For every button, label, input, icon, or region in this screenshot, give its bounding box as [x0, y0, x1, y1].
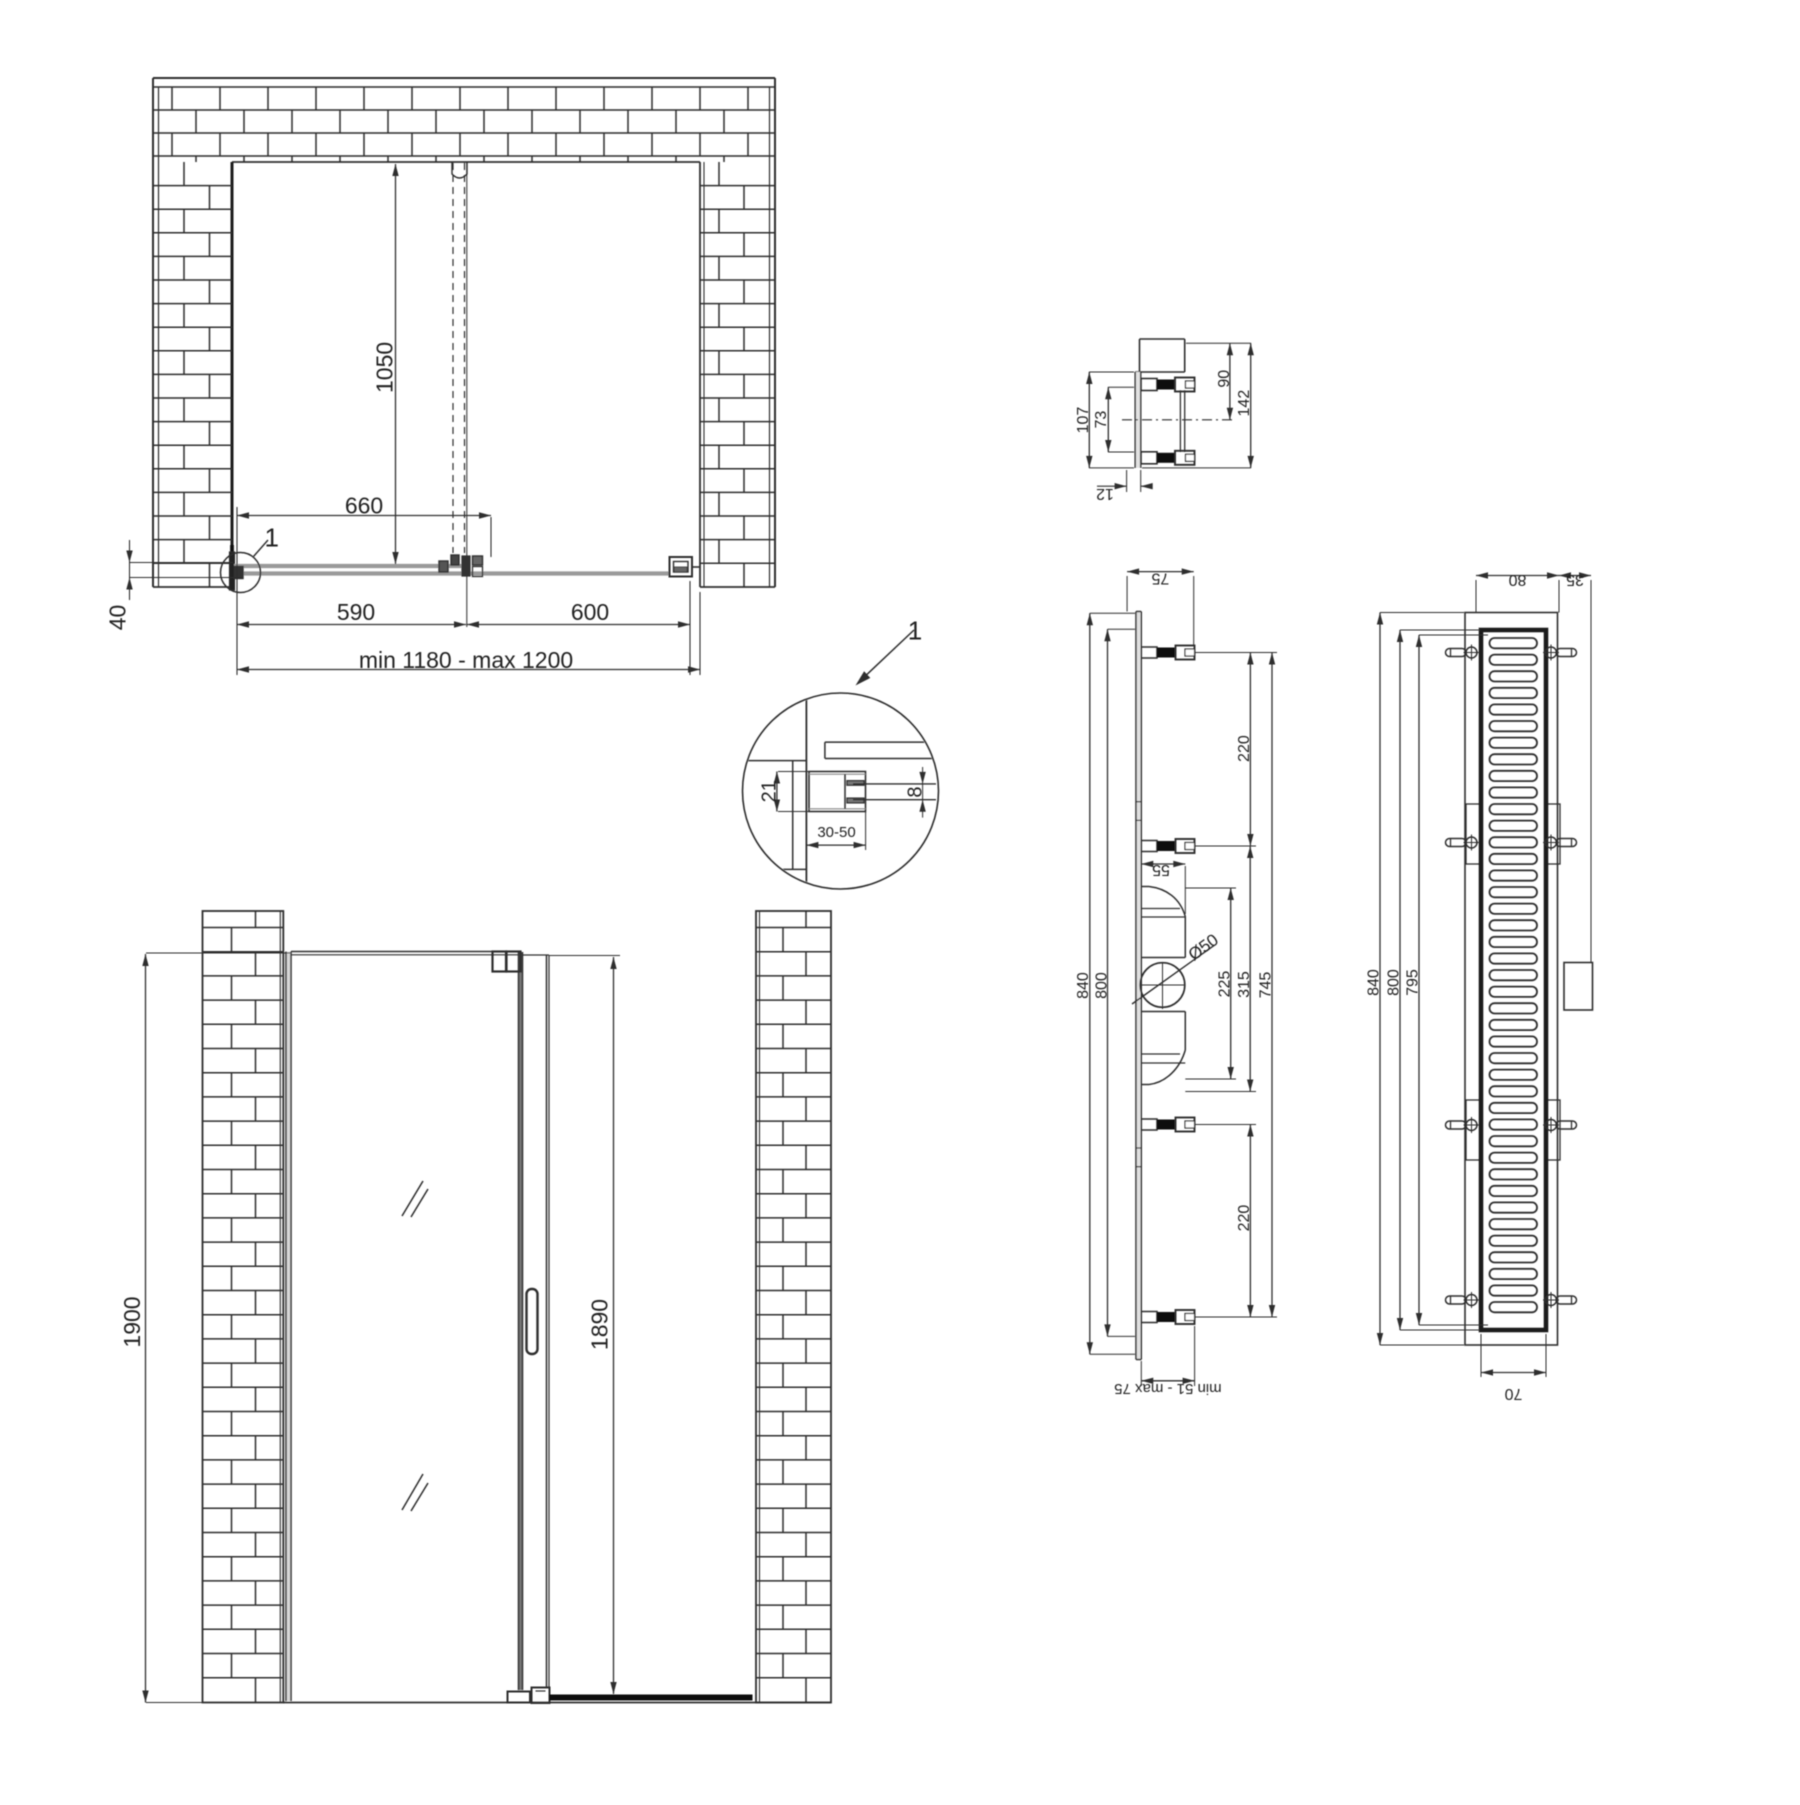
svg-text:225: 225 — [1216, 971, 1233, 998]
svg-text:315: 315 — [1236, 971, 1253, 998]
svg-text:107: 107 — [1075, 407, 1092, 434]
svg-text:800: 800 — [1385, 969, 1402, 996]
svg-text:40: 40 — [105, 605, 131, 631]
svg-text:70: 70 — [1505, 1385, 1523, 1402]
svg-text:1890: 1890 — [586, 1299, 612, 1350]
svg-text:590: 590 — [337, 599, 375, 625]
svg-text:Ø50: Ø50 — [1185, 930, 1222, 964]
svg-text:90: 90 — [1216, 370, 1233, 388]
svg-text:795: 795 — [1404, 969, 1421, 996]
svg-text:840: 840 — [1075, 972, 1092, 999]
svg-text:1050: 1050 — [372, 342, 398, 393]
svg-text:30-50: 30-50 — [817, 824, 855, 841]
svg-text:840: 840 — [1365, 969, 1382, 996]
svg-text:1900: 1900 — [119, 1296, 145, 1347]
svg-text:73: 73 — [1093, 411, 1110, 429]
svg-text:220: 220 — [1236, 735, 1253, 762]
svg-text:21: 21 — [759, 780, 781, 802]
svg-text:12: 12 — [1096, 485, 1114, 502]
svg-text:min 1180 - max 1200: min 1180 - max 1200 — [359, 647, 573, 673]
svg-text:600: 600 — [571, 599, 609, 625]
svg-text:220: 220 — [1236, 1205, 1253, 1232]
svg-text:745: 745 — [1257, 972, 1274, 999]
svg-text:1: 1 — [264, 522, 278, 552]
svg-text:35: 35 — [1566, 571, 1584, 588]
svg-text:80: 80 — [1509, 571, 1527, 588]
svg-text:660: 660 — [345, 492, 383, 518]
svg-text:55: 55 — [1152, 861, 1170, 878]
svg-text:1: 1 — [908, 615, 922, 645]
svg-text:min 51 - max 75: min 51 - max 75 — [1114, 1380, 1222, 1397]
svg-text:800: 800 — [1093, 972, 1110, 999]
svg-text:142: 142 — [1236, 390, 1253, 417]
svg-text:8: 8 — [905, 786, 927, 797]
svg-text:75: 75 — [1151, 570, 1169, 587]
